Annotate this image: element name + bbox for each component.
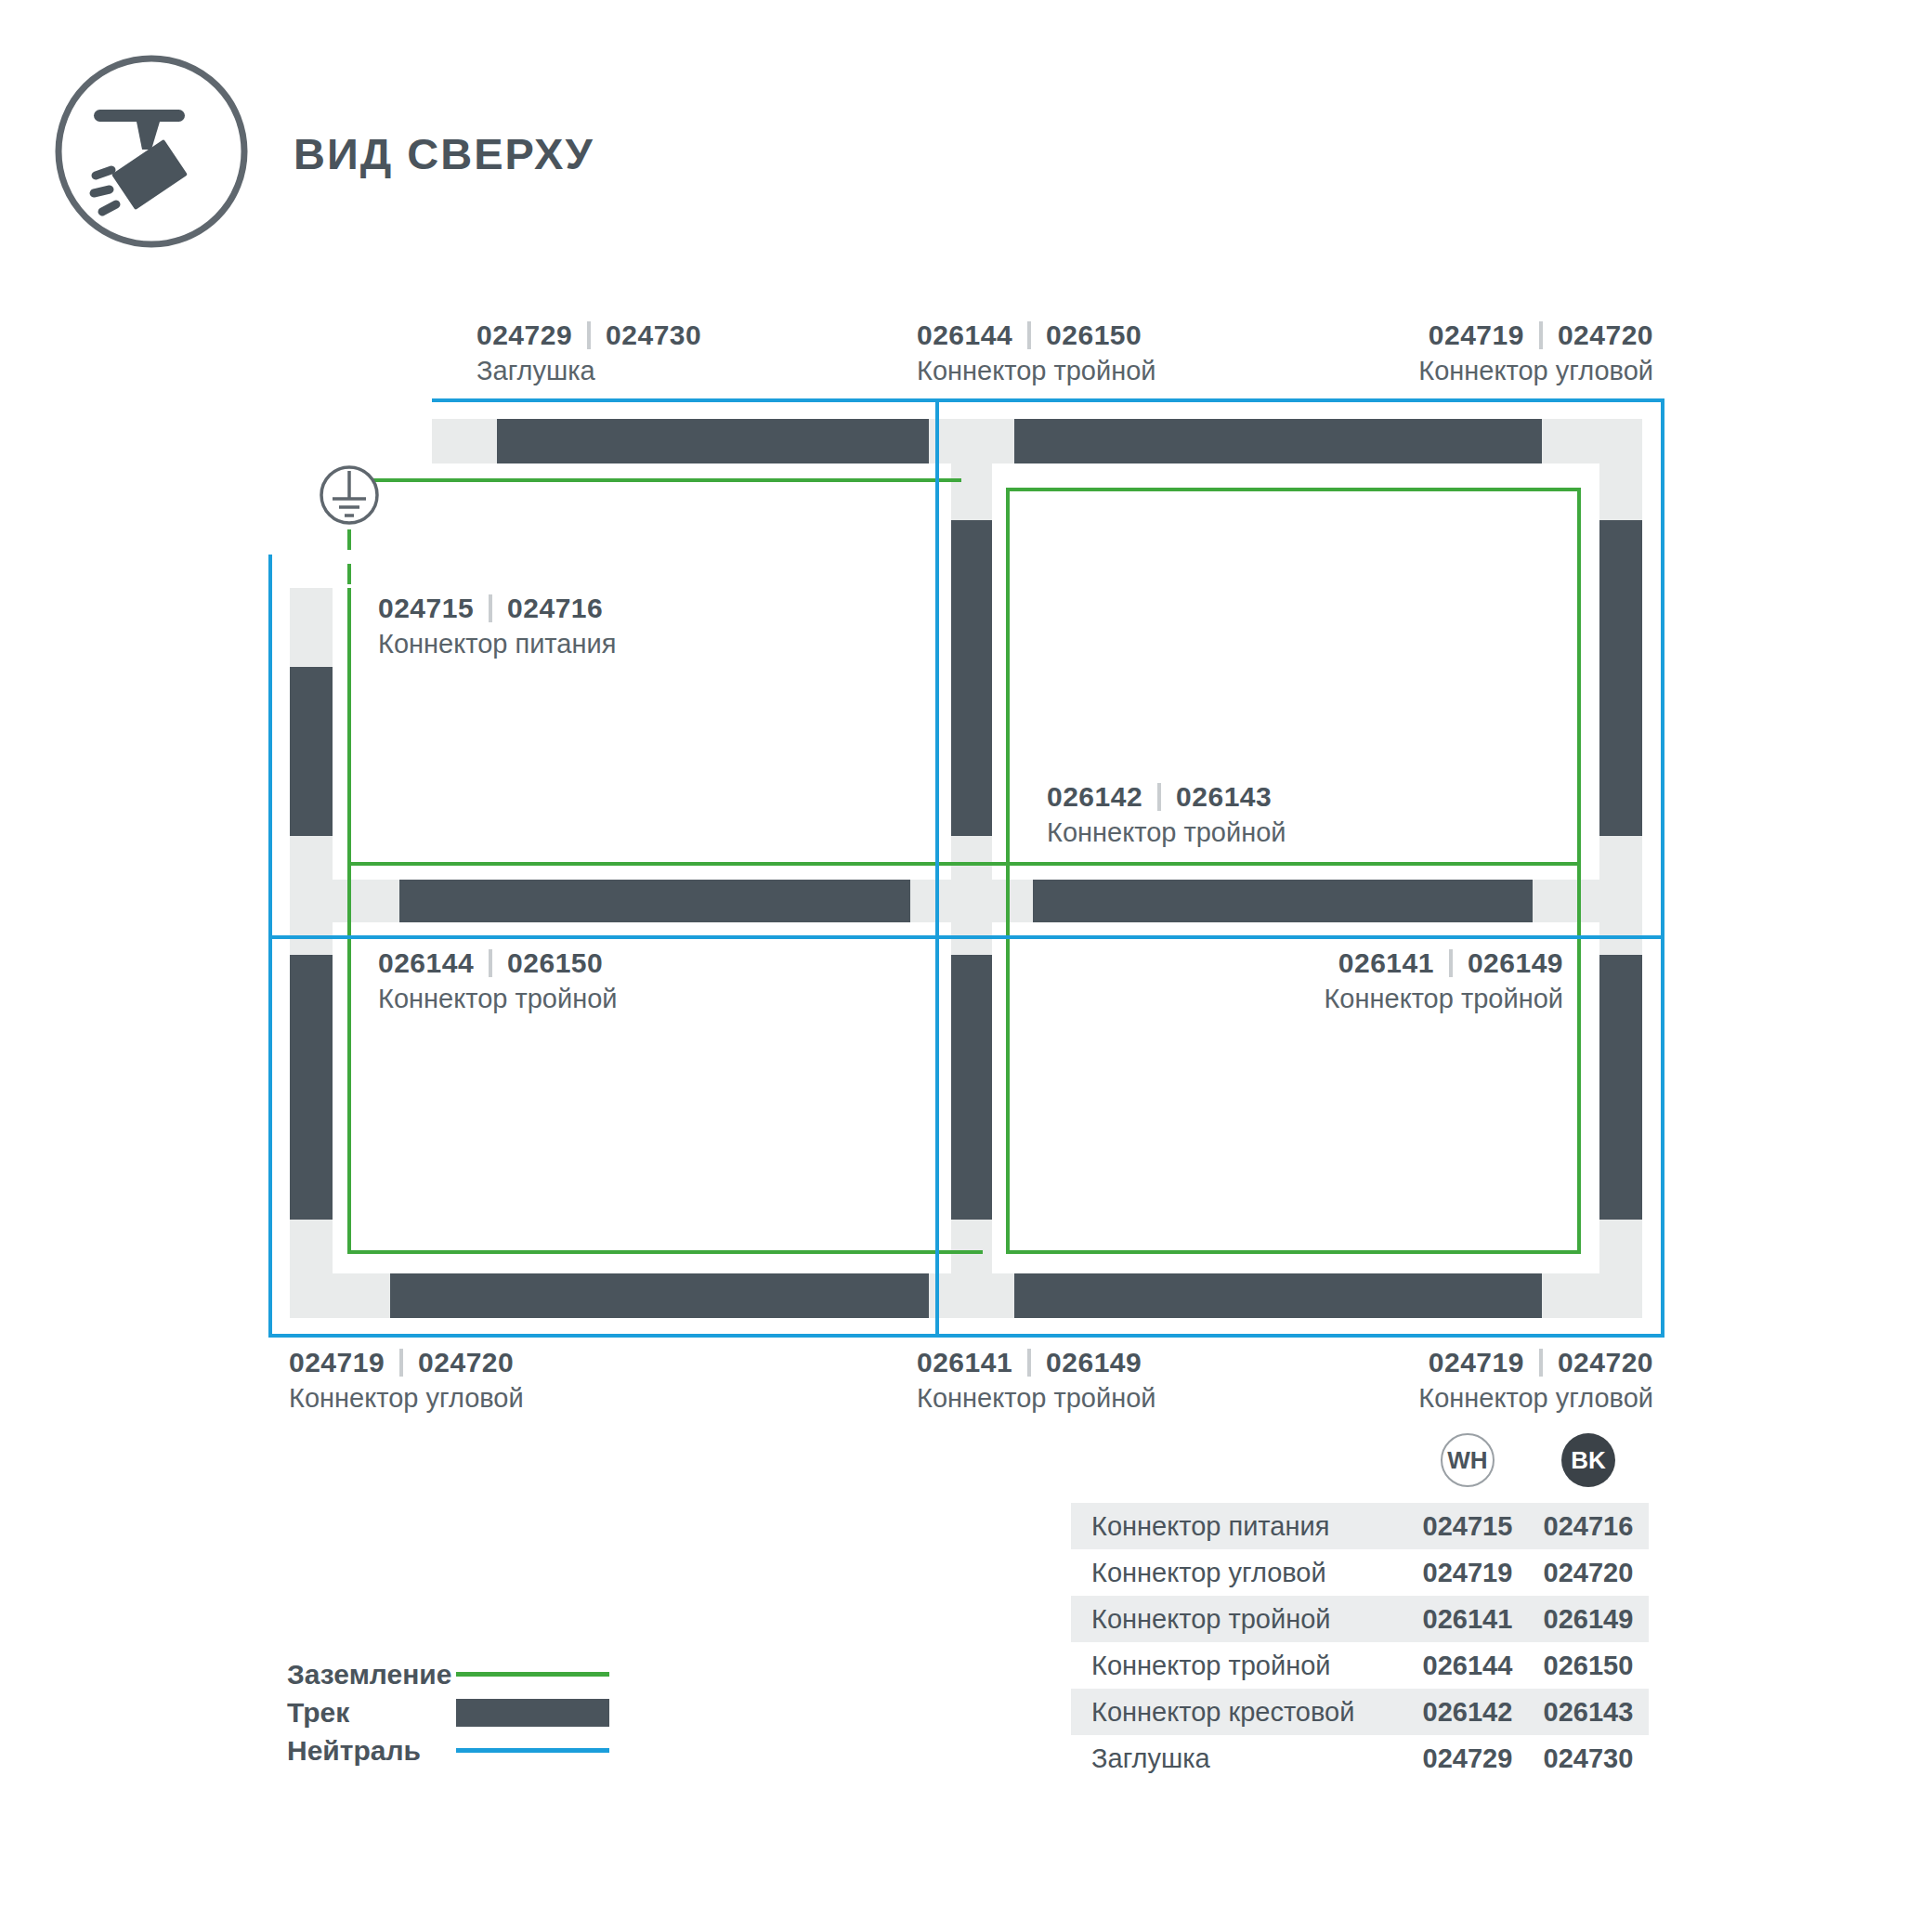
label-corner-bottom-right: 024719024720 Коннектор угловой [1418,1349,1653,1412]
table-row: Заглушка 024729 024730 [1071,1735,1649,1782]
label-corner-top-right: 024719024720 Коннектор угловой [1418,321,1653,385]
earth-ground-icon [321,467,377,523]
track-bar-swatch [456,1699,609,1727]
neutral-line-swatch [456,1748,609,1753]
divider [1539,321,1543,349]
legend-item-track: Трек [287,1693,609,1731]
divider [489,949,492,977]
label-t-connector-mid-right: 026141026149 Коннектор тройной [1324,949,1563,1012]
label-t-connector-bottom: 026141026149 Коннектор тройной [917,1349,1156,1412]
legend: Заземление Трек Нейтраль [287,1655,609,1769]
table-row: Коннектор питания 024715 024716 [1071,1503,1649,1549]
label-cross-connector: 026142026143 Коннектор тройной [1047,783,1286,846]
ground-line-swatch [456,1672,609,1677]
table-row: Коннектор крестовой 026142 026143 [1071,1689,1649,1735]
page: ВИД СВЕРХУ [0,0,1932,1932]
legend-item-neutral: Нейтраль [287,1731,609,1769]
parts-table: Коннектор питания 024715 024716 Коннекто… [1071,1503,1649,1782]
table-row: Коннектор тройной 026141 026149 [1071,1596,1649,1642]
divider [399,1349,403,1377]
label-power-connector: 024715024716 Коннектор питания [378,594,616,658]
divider [587,321,591,349]
divider [489,594,492,622]
label-corner-bottom-left: 024719024720 Коннектор угловой [289,1349,524,1412]
label-t-connector-mid-left: 026144026150 Коннектор тройной [378,949,618,1012]
table-row: Коннектор тройной 026144 026150 [1071,1642,1649,1689]
color-chip-black: BK [1561,1433,1615,1487]
divider [1539,1349,1543,1377]
legend-item-ground: Заземление [287,1655,609,1693]
label-t-connector-top: 026144026150 Коннектор тройной [917,321,1156,385]
label-endcap-top: 024729024730 Заглушка [476,321,701,385]
divider [1027,321,1031,349]
table-row: Коннектор угловой 024719 024720 [1071,1549,1649,1596]
divider [1157,783,1161,811]
divider [1027,1349,1031,1377]
divider [1449,949,1453,977]
color-chip-white: WH [1441,1433,1495,1487]
